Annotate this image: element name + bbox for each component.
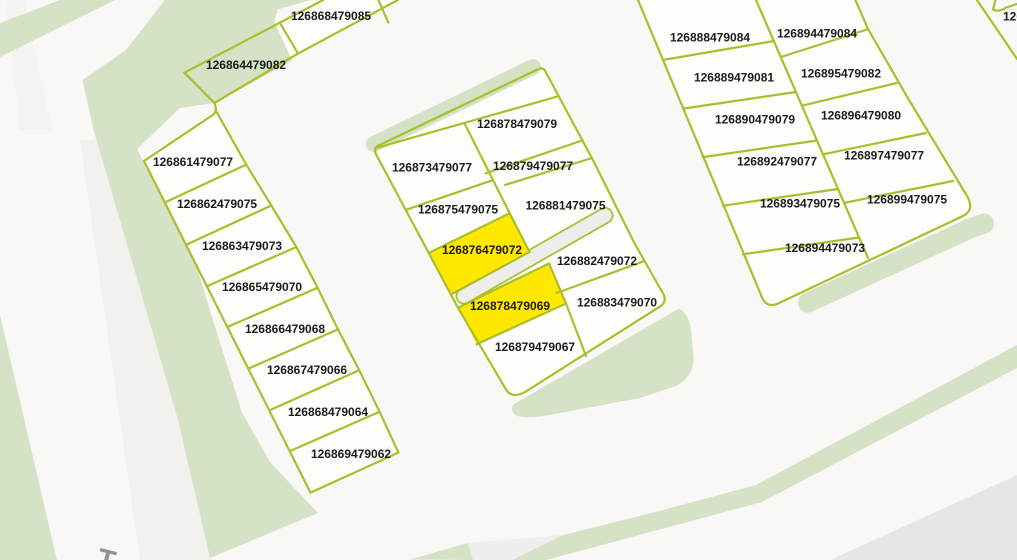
svg-text:126888479084: 126888479084 — [670, 31, 750, 45]
svg-text:126875479075: 126875479075 — [418, 203, 498, 217]
svg-text:126863479073: 126863479073 — [202, 239, 282, 253]
svg-text:126876479072: 126876479072 — [442, 243, 522, 257]
svg-text:126894479073: 126894479073 — [785, 241, 865, 255]
svg-text:126879479067: 126879479067 — [495, 340, 575, 354]
svg-text:126878479069: 126878479069 — [470, 299, 550, 313]
svg-text:126868479064: 126868479064 — [288, 405, 368, 419]
svg-text:126894479084: 126894479084 — [777, 27, 857, 41]
svg-text:126866479068: 126866479068 — [245, 322, 325, 336]
svg-text:126889479081: 126889479081 — [694, 71, 774, 85]
svg-text:126899479075: 126899479075 — [867, 193, 947, 207]
svg-text:126883479070: 126883479070 — [577, 296, 657, 310]
svg-text:126895479082: 126895479082 — [801, 67, 881, 81]
svg-text:126892479077: 126892479077 — [737, 155, 817, 169]
svg-text:126861479077: 126861479077 — [153, 155, 233, 169]
svg-text:126879479077: 126879479077 — [493, 159, 573, 173]
svg-text:126868479085: 126868479085 — [291, 9, 371, 23]
svg-text:126: 126 — [1003, 10, 1017, 24]
svg-text:126881479075: 126881479075 — [525, 199, 605, 213]
svg-text:126865479070: 126865479070 — [222, 280, 302, 294]
svg-text:126869479062: 126869479062 — [311, 447, 391, 461]
svg-text:126890479079: 126890479079 — [715, 113, 795, 127]
svg-text:126896479080: 126896479080 — [821, 109, 901, 123]
svg-text:126897479077: 126897479077 — [844, 149, 924, 163]
svg-text:126873479077: 126873479077 — [392, 161, 472, 175]
svg-text:126882479072: 126882479072 — [557, 254, 637, 268]
svg-text:126862479075: 126862479075 — [177, 197, 257, 211]
svg-text:126864479082: 126864479082 — [206, 58, 286, 72]
svg-text:126878479079: 126878479079 — [477, 117, 557, 131]
svg-text:126893479075: 126893479075 — [760, 197, 840, 211]
svg-text:126867479066: 126867479066 — [267, 363, 347, 377]
